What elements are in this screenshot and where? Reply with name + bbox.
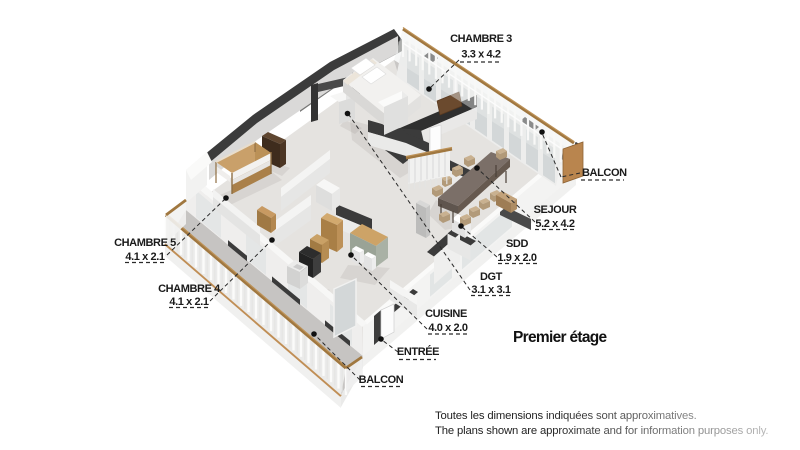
svg-text:5.2 x 4.2: 5.2 x 4.2 [535, 218, 574, 230]
svg-text:CHAMBRE 5: CHAMBRE 5 [114, 237, 176, 249]
svg-text:Premier étage: Premier étage [513, 329, 608, 346]
svg-text:1.9 x 2.0: 1.9 x 2.0 [497, 252, 536, 264]
svg-text:ENTRÉE: ENTRÉE [397, 345, 439, 358]
svg-text:SEJOUR: SEJOUR [534, 204, 577, 216]
svg-text:DGT: DGT [480, 271, 503, 283]
svg-text:BALCON: BALCON [359, 374, 404, 386]
svg-text:4.0 x 2.0: 4.0 x 2.0 [428, 322, 467, 334]
svg-text:SDD: SDD [506, 238, 528, 250]
svg-text:4.1 x 2.1: 4.1 x 2.1 [125, 251, 164, 263]
svg-text:4.1 x 2.1: 4.1 x 2.1 [169, 296, 208, 308]
svg-text:CHAMBRE 3: CHAMBRE 3 [450, 33, 512, 45]
svg-text:CHAMBRE 4: CHAMBRE 4 [158, 283, 221, 295]
svg-text:CUISINE: CUISINE [425, 308, 467, 320]
svg-text:3.1 x 3.1: 3.1 x 3.1 [471, 284, 510, 296]
svg-text:BALCON: BALCON [582, 167, 627, 179]
svg-text:3.3 x 4.2: 3.3 x 4.2 [461, 49, 500, 61]
